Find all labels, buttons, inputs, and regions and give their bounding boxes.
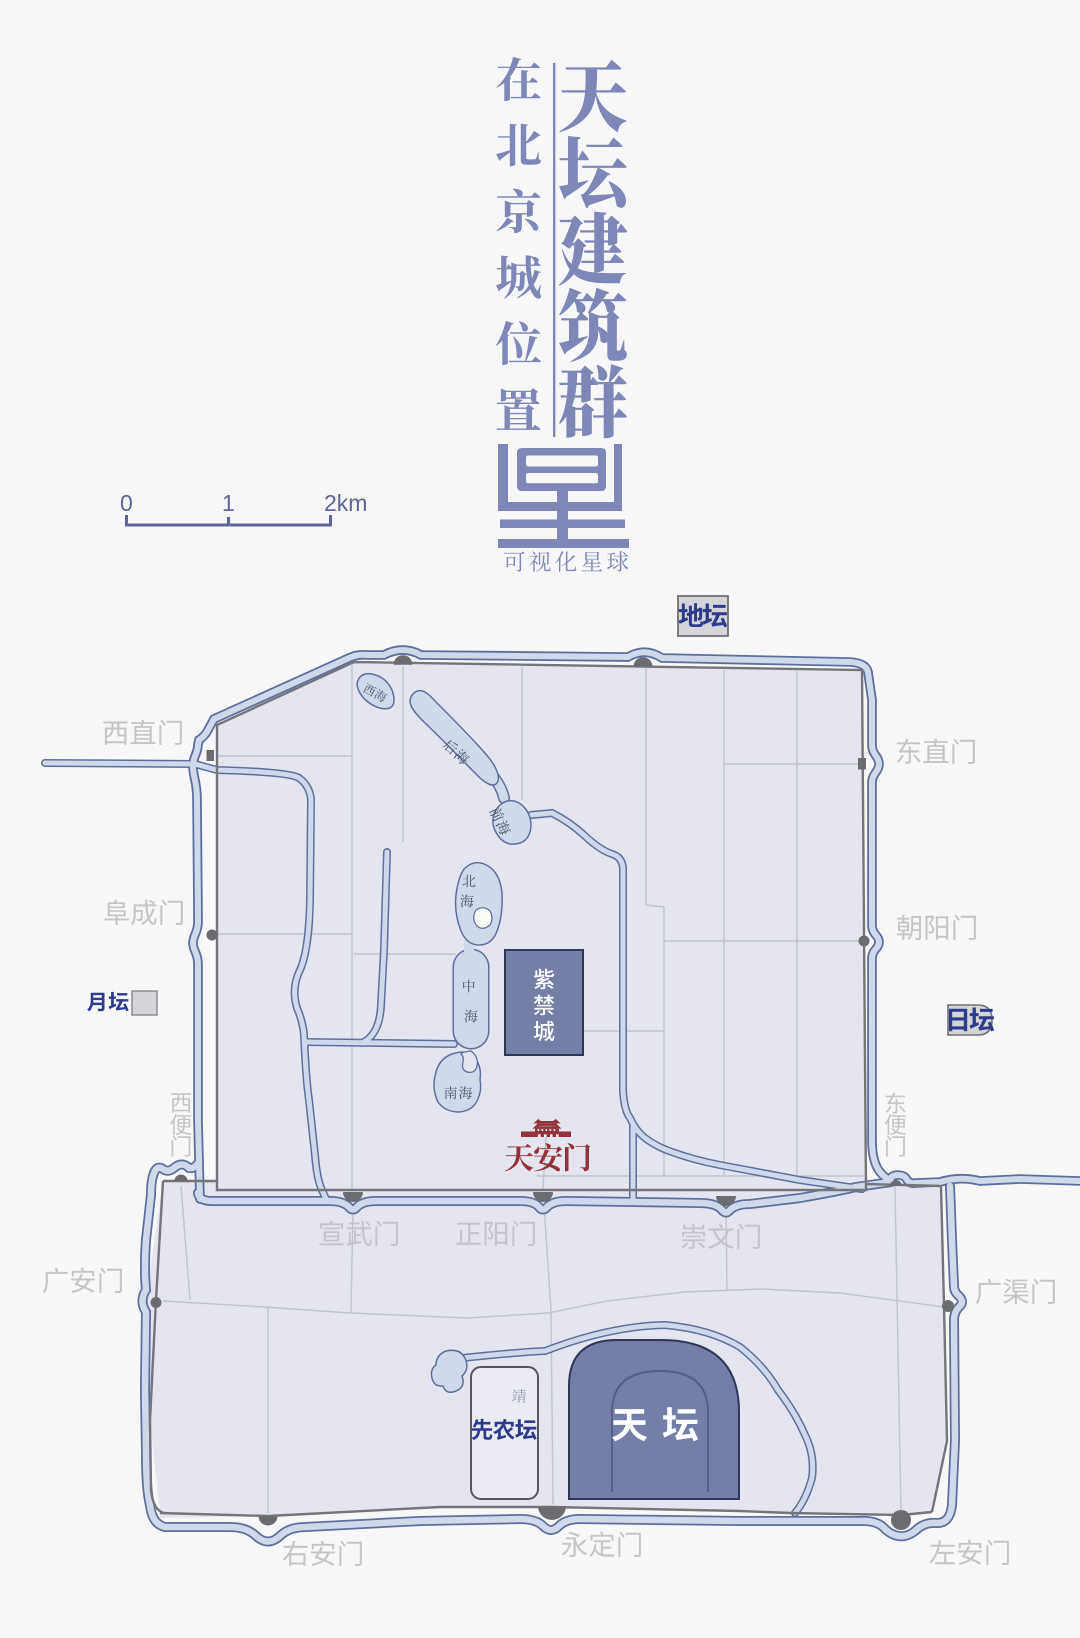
svg-text:1: 1: [222, 490, 235, 516]
svg-text:0: 0: [120, 490, 133, 516]
svg-text:2km: 2km: [324, 490, 367, 516]
